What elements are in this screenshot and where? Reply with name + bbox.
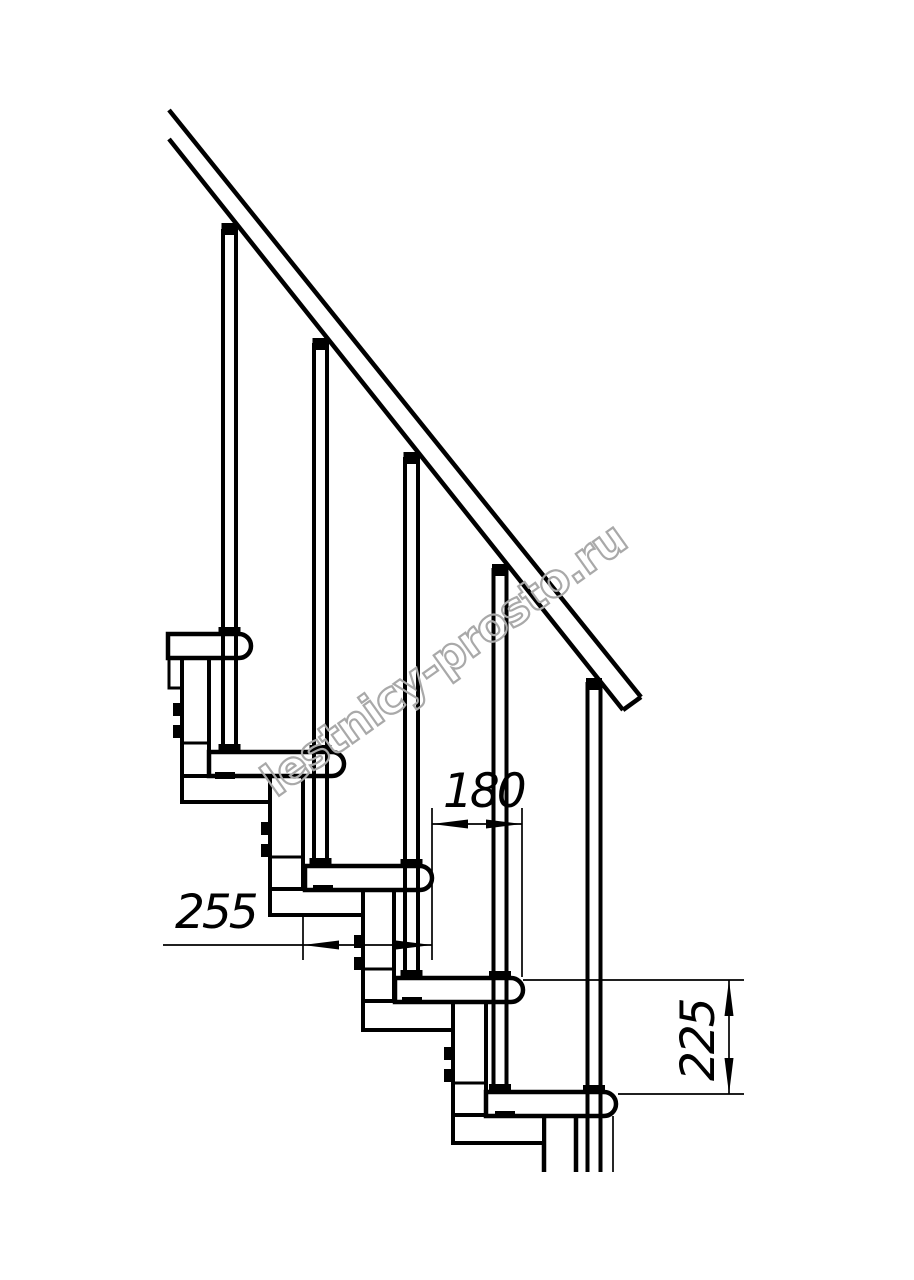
connector-box-4 — [453, 1115, 544, 1143]
arrowhead-left — [432, 820, 468, 829]
baluster-2 — [314, 343, 327, 864]
staircase-drawing: 180 255 225 lestnicy-prosto.ru — [0, 0, 914, 1280]
dimension-rise-label: 225 — [671, 999, 726, 1081]
arrowhead-left — [303, 941, 339, 950]
watermark-text: lestnicy-prosto.ru — [252, 512, 636, 807]
handrail-end-cap — [623, 697, 641, 710]
baluster-rail-collars — [222, 223, 603, 690]
tread-1 — [168, 634, 251, 658]
dimension-run-label: 180 — [443, 764, 525, 819]
connector-box-1 — [182, 776, 270, 802]
support-column-5 — [544, 1115, 576, 1172]
arrowhead-right — [486, 820, 522, 829]
baluster-1 — [223, 229, 236, 750]
dimension-rise-225: 225 — [523, 980, 744, 1094]
technical-drawing-canvas: 180 255 225 lestnicy-prosto.ru — [0, 0, 914, 1280]
dimension-tread-depth-label: 255 — [175, 885, 257, 940]
dimension-run-180: 180 — [432, 764, 525, 977]
connector-box-2 — [270, 889, 363, 915]
arrowhead-right — [396, 941, 432, 950]
connector-box-3 — [363, 1001, 453, 1030]
